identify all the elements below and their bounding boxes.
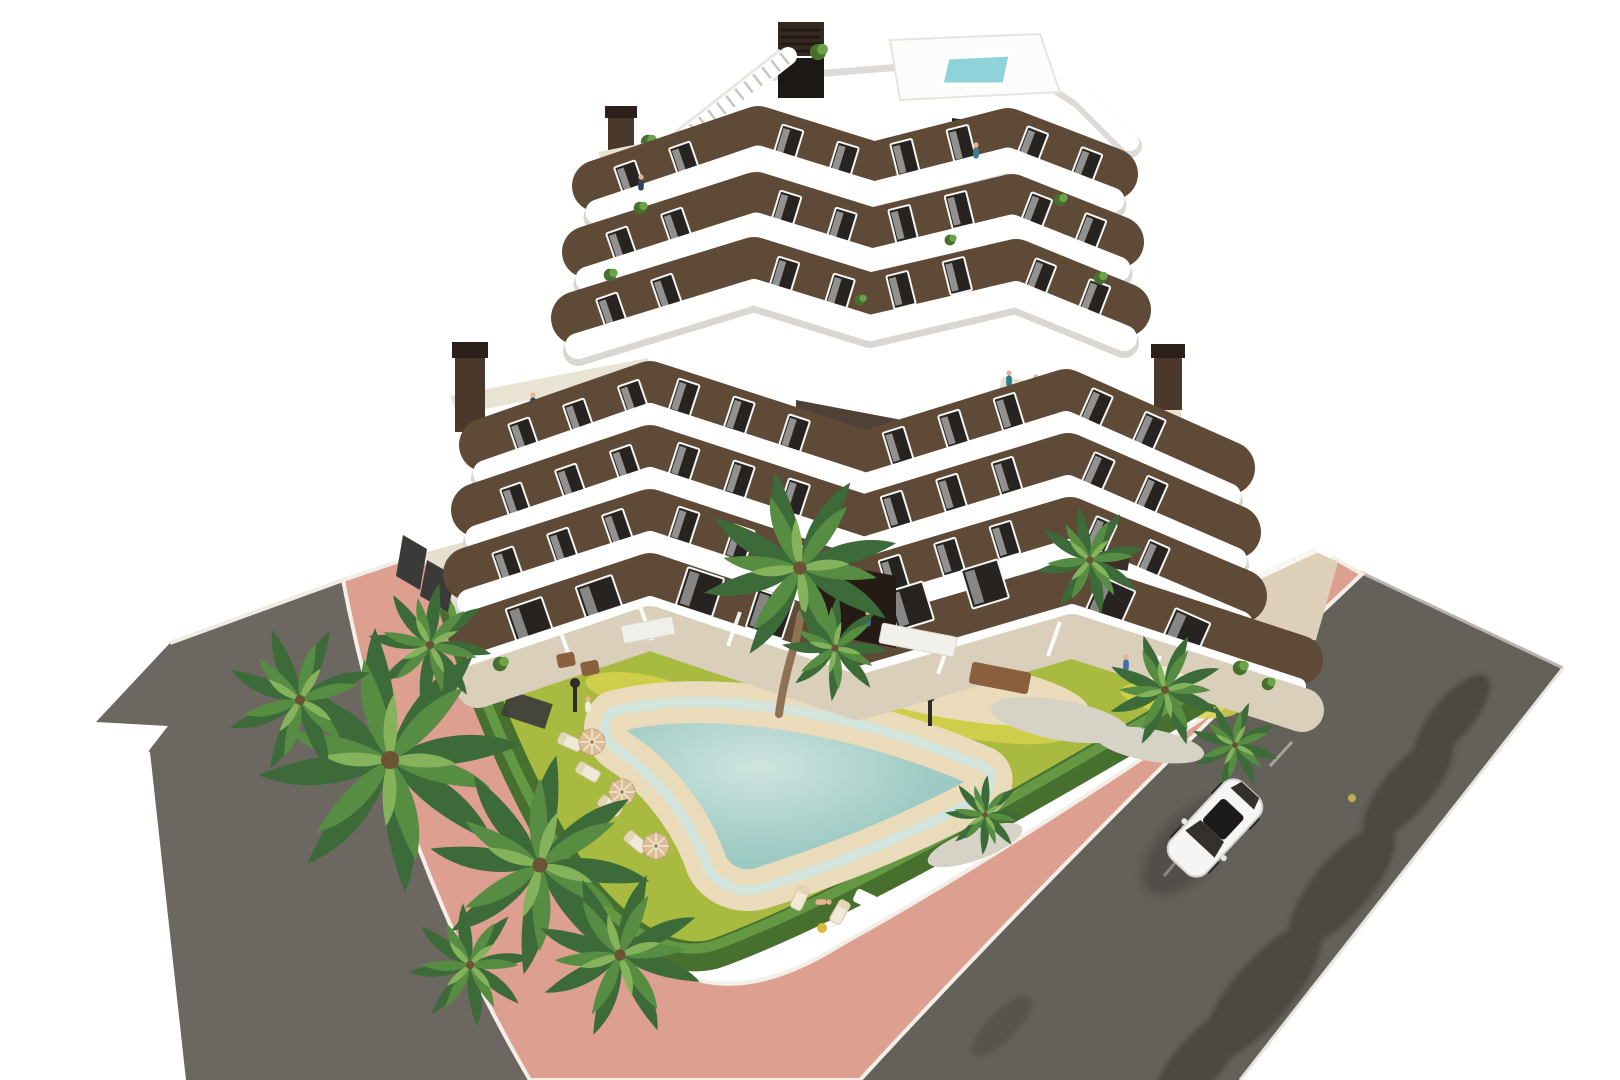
render-canvas: Aerial 3D architectural render of a mode… xyxy=(0,0,1620,1080)
rooftop-pool xyxy=(942,55,1010,84)
pool-item xyxy=(817,923,827,933)
tower-floors xyxy=(578,125,1124,351)
east-chimney xyxy=(1151,344,1185,410)
road-debris xyxy=(1348,794,1356,802)
scene-svg: Aerial 3D architectural render of a mode… xyxy=(0,0,1620,1080)
